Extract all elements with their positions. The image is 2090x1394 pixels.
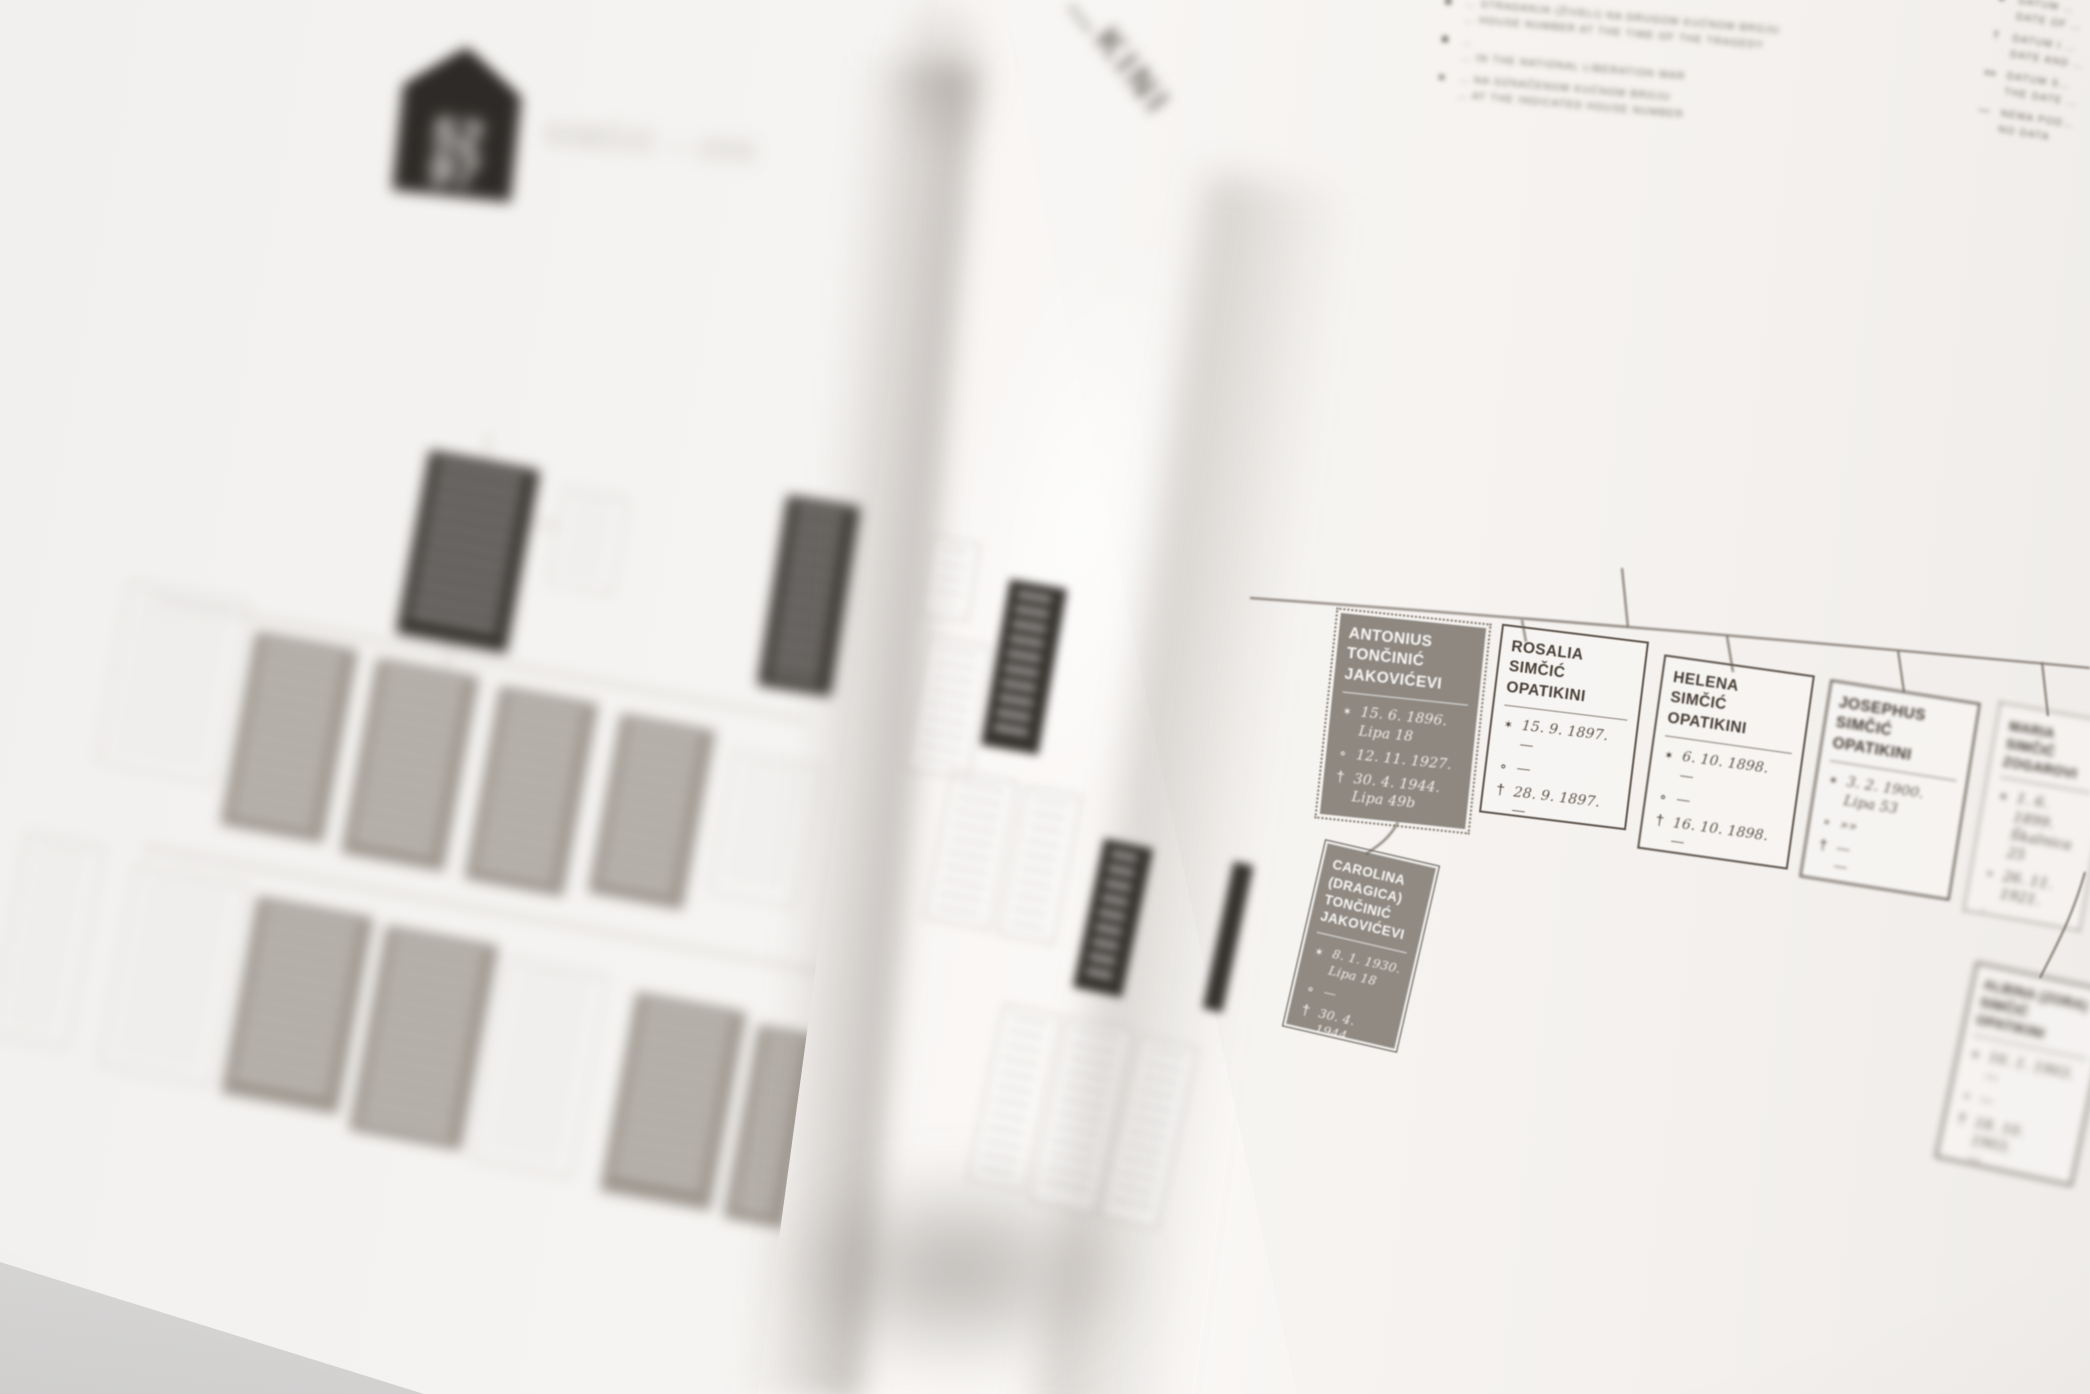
blurred-person-box <box>907 636 992 780</box>
book-photo: 52 97 SIMČIĆ – JAK <box>0 0 2090 1394</box>
partial-page-title: …KINI <box>1060 0 1181 125</box>
blurred-person-box <box>922 537 980 621</box>
turning-page-content: …KINI <box>0 0 2090 1394</box>
page-edge-dark-strip <box>1203 862 1254 1013</box>
blurred-person-box-dark <box>981 579 1067 755</box>
blurred-person-box-dark <box>1073 838 1154 997</box>
